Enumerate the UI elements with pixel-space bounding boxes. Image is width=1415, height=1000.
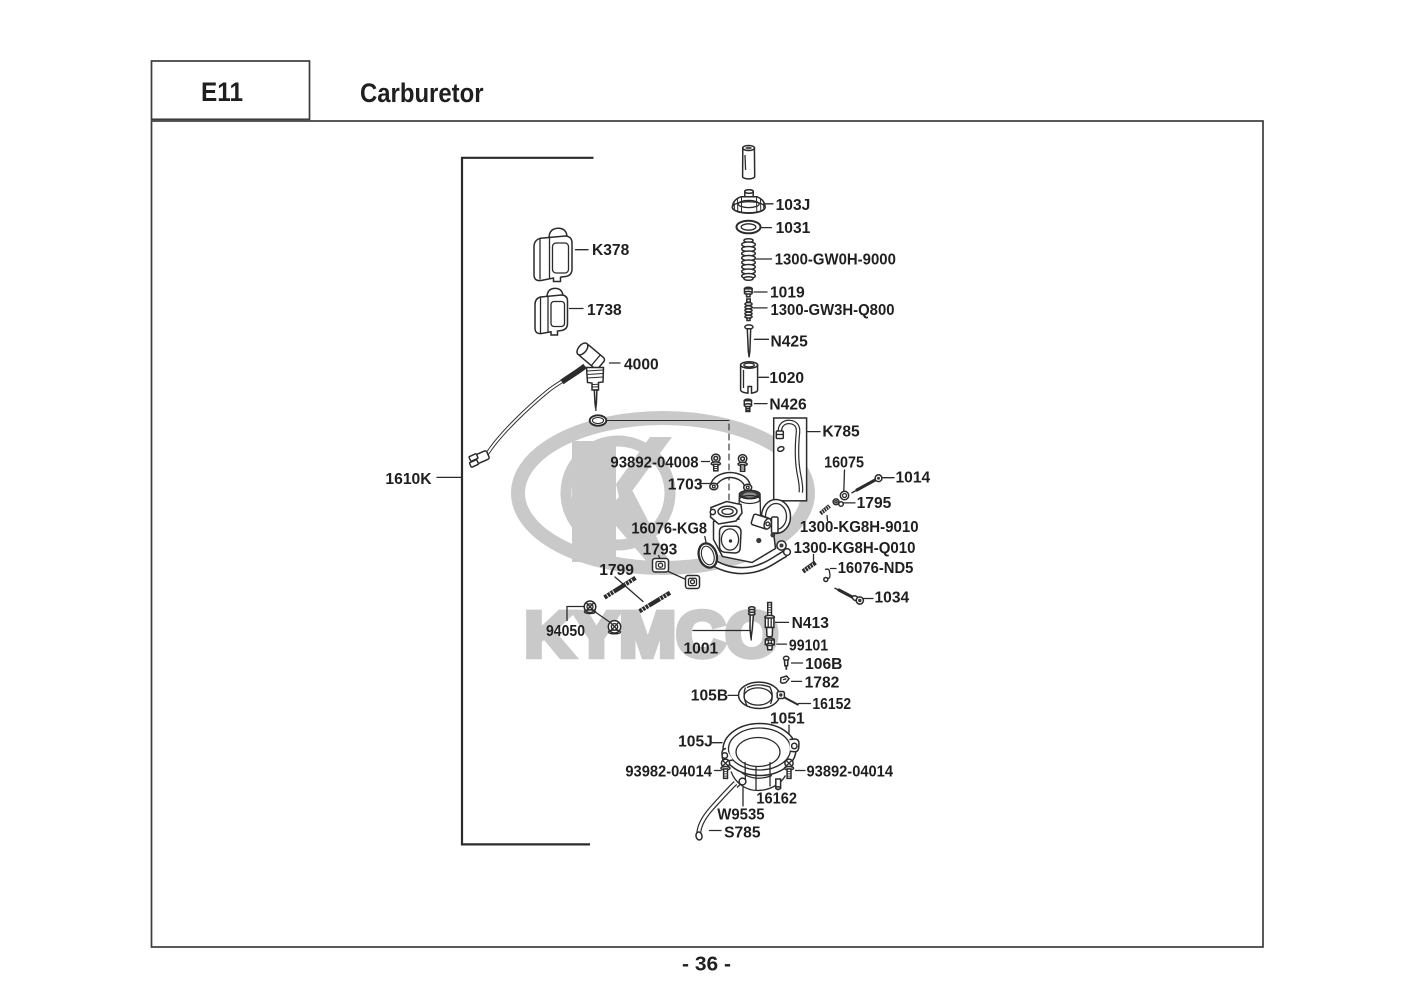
svg-text:16075: 16075 bbox=[824, 455, 864, 472]
svg-text:S785: S785 bbox=[724, 825, 761, 842]
svg-text:1019: 1019 bbox=[770, 285, 805, 302]
svg-text:103J: 103J bbox=[776, 197, 811, 214]
svg-text:106B: 106B bbox=[805, 656, 842, 673]
svg-text:1703: 1703 bbox=[668, 477, 703, 494]
svg-text:- 36 -: - 36 - bbox=[682, 953, 731, 976]
svg-text:105B: 105B bbox=[691, 688, 728, 705]
svg-text:N426: N426 bbox=[769, 397, 807, 414]
svg-text:1799: 1799 bbox=[599, 562, 634, 579]
svg-text:1793: 1793 bbox=[643, 542, 678, 559]
svg-text:1795: 1795 bbox=[857, 495, 892, 512]
svg-text:93892-04008: 93892-04008 bbox=[610, 455, 699, 472]
svg-text:1300-KG8H-Q010: 1300-KG8H-Q010 bbox=[794, 540, 916, 557]
svg-text:1001: 1001 bbox=[684, 641, 719, 658]
svg-text:1034: 1034 bbox=[875, 590, 910, 607]
svg-text:93982-04014: 93982-04014 bbox=[625, 764, 712, 781]
svg-text:4000: 4000 bbox=[624, 357, 659, 374]
svg-text:Carburetor: Carburetor bbox=[360, 78, 484, 108]
svg-text:94050: 94050 bbox=[546, 623, 585, 640]
svg-text:93892-04014: 93892-04014 bbox=[807, 764, 894, 781]
svg-text:1782: 1782 bbox=[805, 675, 840, 692]
svg-text:1031: 1031 bbox=[776, 220, 811, 237]
svg-text:1051: 1051 bbox=[770, 711, 805, 728]
svg-text:1014: 1014 bbox=[896, 470, 931, 487]
svg-text:N413: N413 bbox=[792, 615, 830, 632]
svg-text:105J: 105J bbox=[678, 734, 713, 751]
svg-text:1300-KG8H-9010: 1300-KG8H-9010 bbox=[800, 519, 919, 536]
svg-text:W9535: W9535 bbox=[717, 807, 765, 824]
svg-text:16076-ND5: 16076-ND5 bbox=[838, 560, 914, 577]
svg-text:1020: 1020 bbox=[769, 370, 804, 387]
svg-text:1610K: 1610K bbox=[385, 471, 432, 488]
svg-text:99101: 99101 bbox=[789, 638, 828, 655]
svg-text:N425: N425 bbox=[771, 334, 809, 351]
svg-text:K785: K785 bbox=[822, 424, 860, 441]
svg-text:16076-KG8: 16076-KG8 bbox=[631, 521, 707, 538]
svg-text:1300-GW0H-9000: 1300-GW0H-9000 bbox=[775, 252, 896, 269]
svg-text:1300-GW3H-Q800: 1300-GW3H-Q800 bbox=[771, 302, 895, 319]
svg-text:1738: 1738 bbox=[587, 302, 622, 319]
svg-text:16152: 16152 bbox=[812, 696, 851, 713]
svg-text:K378: K378 bbox=[592, 242, 630, 259]
svg-text:E11: E11 bbox=[201, 77, 243, 107]
svg-text:16162: 16162 bbox=[756, 791, 797, 808]
